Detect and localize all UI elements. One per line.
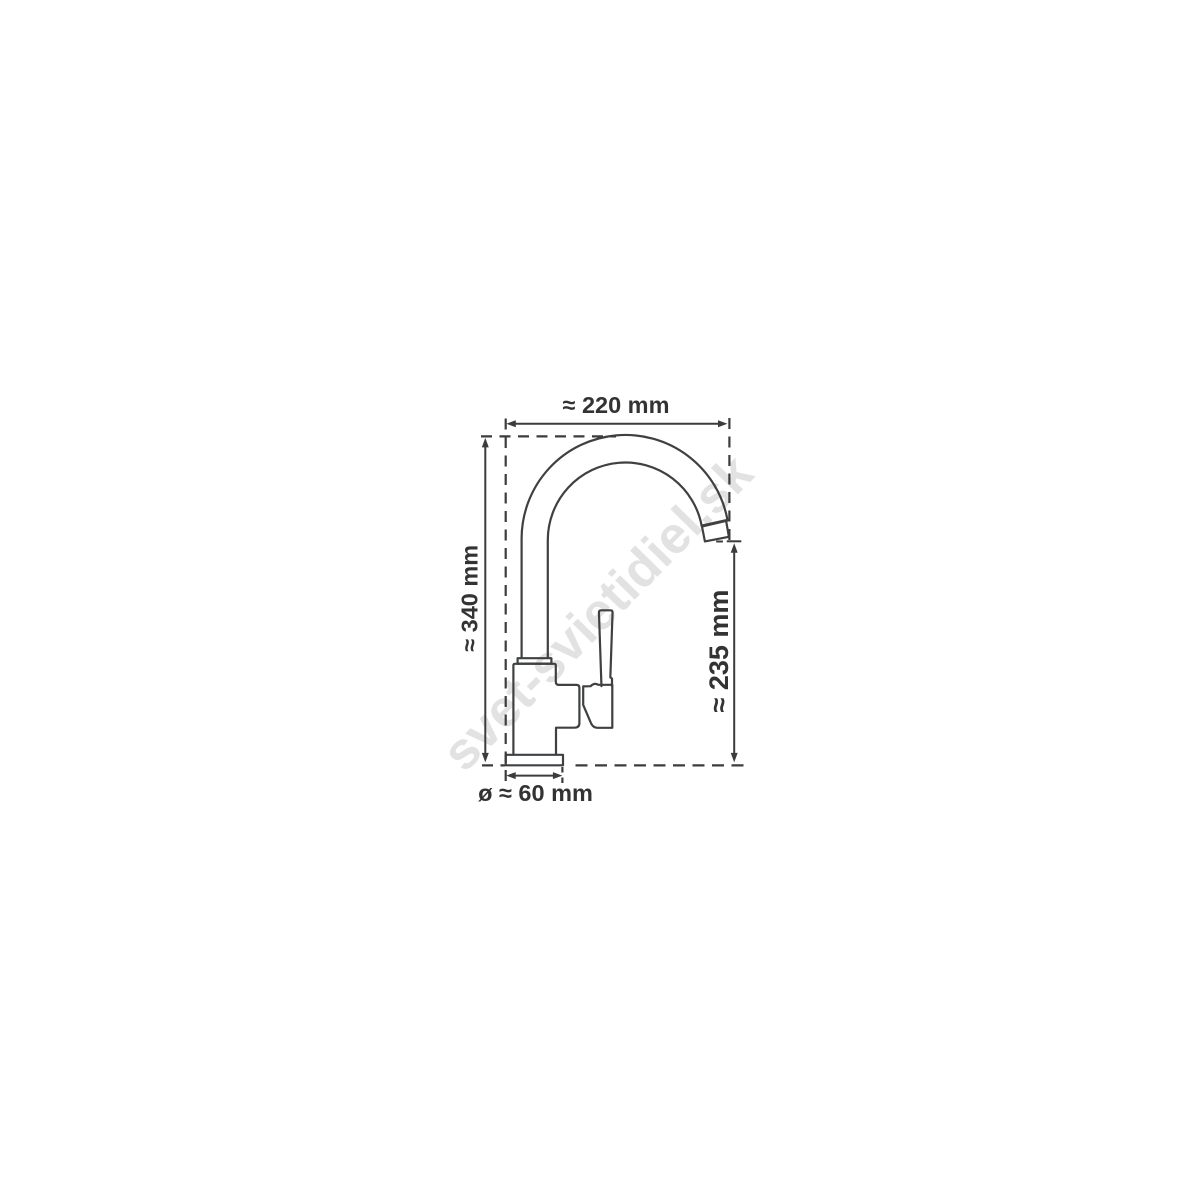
svg-text:≈ 340 mm: ≈ 340 mm: [457, 545, 483, 652]
svg-text:≈ 220 mm: ≈ 220 mm: [563, 392, 670, 418]
svg-text:≈ 235 mm: ≈ 235 mm: [704, 590, 734, 713]
svg-text:ø ≈ 60 mm: ø ≈ 60 mm: [478, 780, 593, 806]
